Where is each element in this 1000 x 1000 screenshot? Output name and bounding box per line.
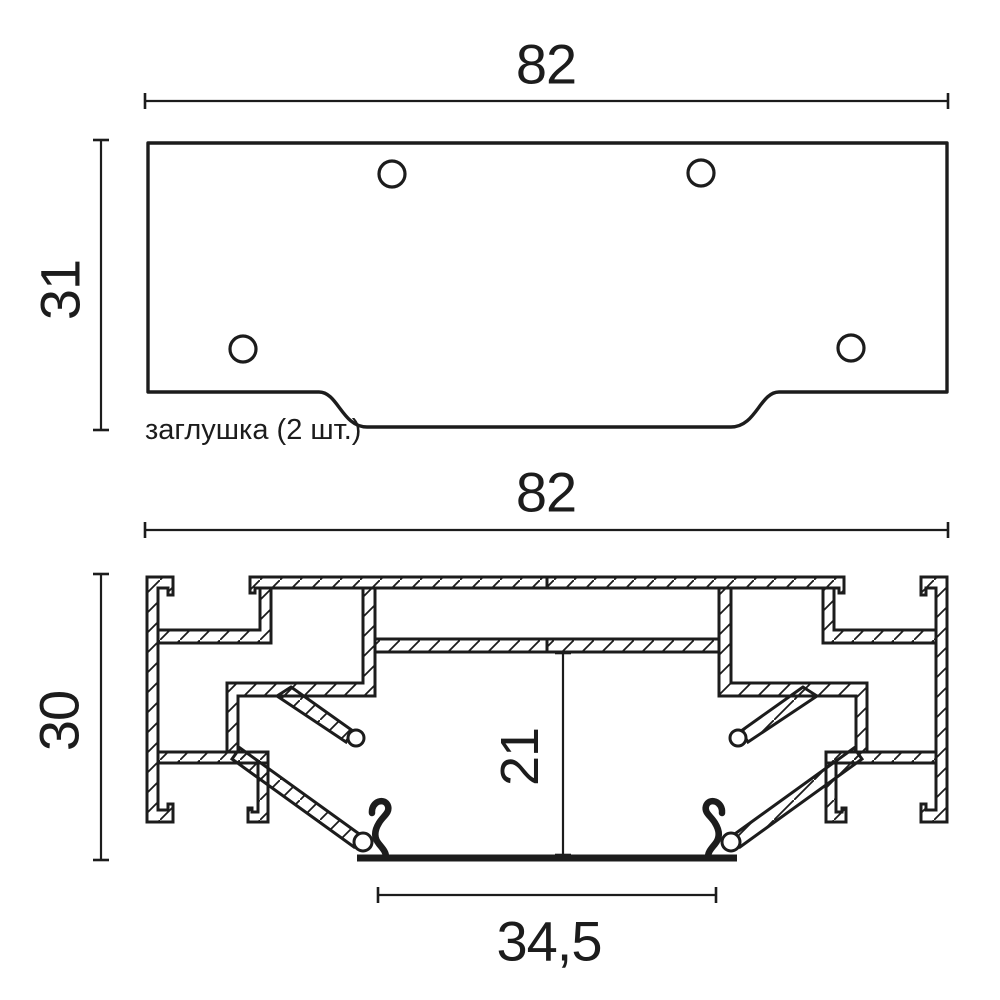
profile-right-half — [545, 577, 947, 858]
dim-height-section: 30 — [28, 574, 110, 860]
profile-section-view: 82 30 21 34,5 — [28, 461, 949, 973]
dim-width-top: 82 — [145, 33, 948, 110]
dim-width-section-value: 82 — [516, 461, 576, 524]
profile-half-shapes — [147, 577, 549, 858]
profile-half-shapes — [545, 577, 947, 858]
dim-opening-width-value: 34,5 — [497, 910, 602, 973]
dim-height-section-value: 30 — [28, 691, 91, 751]
cap-hole-bottom-left — [230, 336, 256, 362]
dim-opening-width: 34,5 — [378, 887, 716, 973]
dim-inner-height-value: 21 — [490, 728, 550, 786]
end-cap-outline — [148, 143, 947, 427]
profile-left-half — [147, 577, 549, 858]
drawing-page: 82 31 заглушка (2 шт.) 82 30 — [0, 0, 1000, 1000]
dim-inner-height: 21 — [490, 653, 571, 855]
dim-height-top-value: 31 — [29, 260, 92, 320]
cap-hole-bottom-right — [838, 335, 864, 361]
dim-height-top: 31 — [29, 140, 110, 430]
technical-drawing: 82 31 заглушка (2 шт.) 82 30 — [0, 0, 1000, 1000]
cap-note-label: заглушка (2 шт.) — [145, 414, 361, 446]
cap-hole-top-right — [688, 160, 714, 186]
dim-width-top-value: 82 — [516, 33, 576, 96]
end-cap-top-view: 82 31 заглушка (2 шт.) — [29, 33, 949, 447]
dim-width-section: 82 — [145, 461, 948, 539]
cap-hole-top-left — [379, 161, 405, 187]
